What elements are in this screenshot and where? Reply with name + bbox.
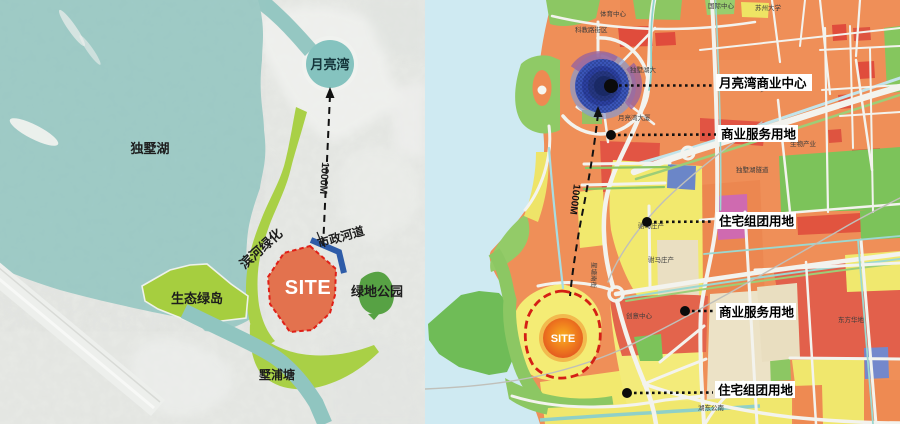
- svg-text:月亮湾商业中心: 月亮湾商业中心: [718, 76, 807, 91]
- svg-text:科教路街区: 科教路街区: [575, 25, 608, 34]
- svg-text:1000M: 1000M: [317, 162, 331, 195]
- svg-text:创意中心: 创意中心: [626, 311, 653, 320]
- svg-text:生态绿岛: 生态绿岛: [171, 291, 223, 306]
- svg-text:商业服务用地: 商业服务用地: [719, 305, 795, 320]
- svg-text:绿地公园: 绿地公园: [351, 284, 403, 299]
- svg-text:独墅湖隧道: 独墅湖隧道: [736, 165, 769, 174]
- svg-text:住宅组团用地: 住宅组团用地: [719, 214, 795, 229]
- svg-text:商业服务用地: 商业服务用地: [721, 127, 797, 142]
- svg-text:东方华地: 东方华地: [838, 315, 865, 324]
- svg-text:住宅组团用地: 住宅组团用地: [718, 383, 794, 398]
- svg-text:独墅湖: 独墅湖: [130, 141, 169, 156]
- svg-text:体育中心: 体育中心: [600, 9, 627, 18]
- svg-text:月亮湾大厦: 月亮湾大厦: [618, 113, 651, 122]
- svg-text:SITE: SITE: [285, 277, 331, 299]
- svg-text:月亮湾: 月亮湾: [309, 57, 349, 72]
- svg-text:墅浦塘: 墅浦塘: [259, 367, 295, 382]
- svg-text:湖东公南: 湖东公南: [698, 403, 725, 412]
- svg-text:独墅湖大: 独墅湖大: [630, 65, 657, 74]
- svg-text:驸马庄产: 驸马庄产: [648, 255, 675, 264]
- svg-text:苏州大学: 苏州大学: [755, 3, 782, 12]
- svg-text:SITE: SITE: [551, 333, 575, 345]
- svg-text:国际中心: 国际中心: [708, 1, 735, 10]
